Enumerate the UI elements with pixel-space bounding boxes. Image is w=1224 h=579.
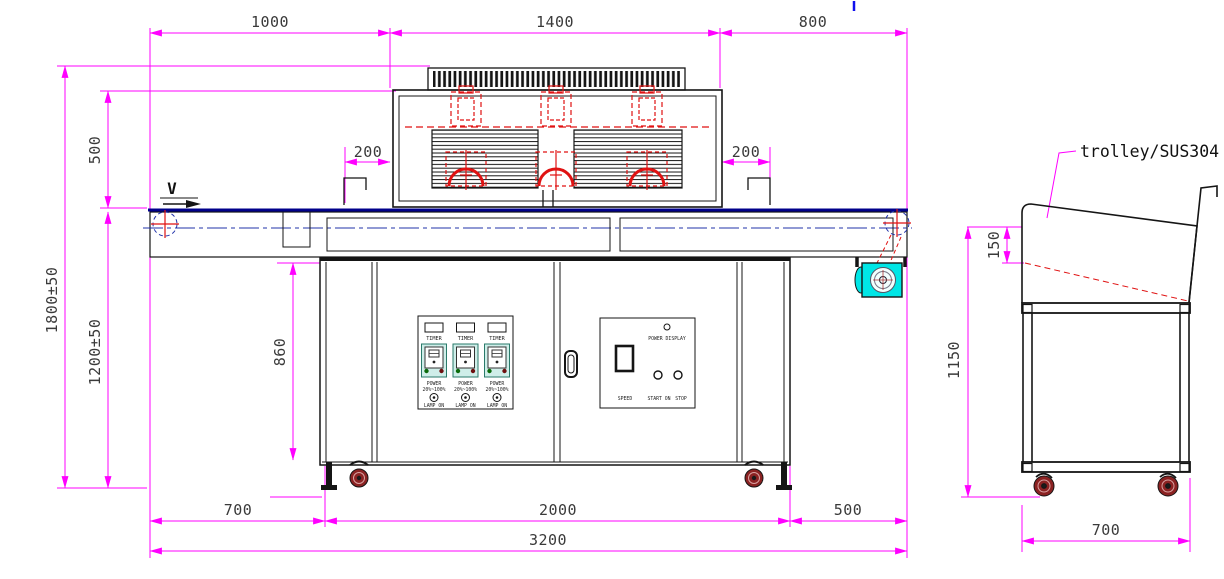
leveling-foot-icon [326,462,332,485]
trolley-back-plate [1189,186,1217,302]
speed-label: SPEED [618,396,633,402]
dim-top-mid-label: 1400 [536,13,574,31]
timer-label: TIMER [426,336,442,342]
engineering-drawing-canvas: 1000 1400 800 1800±50 500 1200±50 200 20… [0,0,1224,579]
vent-louvers-icon [433,71,680,87]
dimension-labels: 1000 1400 800 1800±50 500 1200±50 200 20… [43,13,1120,549]
power-label: POWER [490,381,505,387]
dim-top-right-label: 800 [799,13,828,31]
timer-label: TIMER [489,336,505,342]
power-range-label: 20%~100% [422,387,445,393]
power-range-label: 20%~100% [485,387,508,393]
lamp-on-label: LAMP ON [455,403,475,409]
dimension-lines [57,28,1190,558]
drive-motor-icon [855,257,905,297]
dim-hood-offset-left-label: 200 [354,143,383,161]
dim-overall-length-label: 3200 [529,531,567,549]
dim-bottom-left-label: 700 [224,501,253,519]
dim-bottom-mid-label: 2000 [539,501,577,519]
heatsink-left [432,130,538,188]
caster-icon [1034,474,1054,496]
dim-tray-depth-label: 150 [985,231,1003,260]
lamp-reflector-icon [536,150,576,190]
blower-module-icon [632,86,662,126]
power-label: POWER [427,381,442,387]
roller-left-icon [151,210,179,238]
direction-arrow-icon [186,200,201,208]
heatsink-right [574,130,682,188]
machine-feet [321,462,792,491]
dim-trolley-height-label: 1150 [945,341,963,379]
dim-cabinet-height-label: 860 [271,338,289,367]
lamp-on-label: LAMP ON [487,403,507,409]
timer-label: TIMER [458,336,474,342]
power-display-label: POWER DISPLAY [648,336,686,342]
blower-module-icon [451,86,481,126]
belt-direction-marker: V [160,179,201,208]
dim-bottom-right-label: 500 [834,501,863,519]
trolley-material-label: trolley/SUS304 [1080,142,1219,161]
left-bracket [344,178,366,205]
right-bracket [748,178,770,205]
power-label: POWER [458,381,473,387]
uv-lamp-internals [405,86,710,190]
power-range-label: 20%~100% [454,387,477,393]
lamp-on-label: LAMP ON [424,403,444,409]
trolley-side-view [1022,186,1217,496]
dim-hood-offset-right-label: 200 [732,143,761,161]
start-on-label: START ON [647,396,670,402]
tray-bottom-hidden-line [1025,263,1188,301]
leveling-foot-icon [781,462,787,485]
caster-icon [1158,474,1178,496]
dim-overall-height-label: 1800±50 [43,267,61,334]
control-cabinet [320,258,790,465]
dim-trolley-width-label: 700 [1092,521,1121,539]
velocity-label: V [167,179,177,198]
door-handle[interactable] [565,351,577,377]
lamp-control-panel: TIMER POWER 20%~100% LAMP ON TIMER P [418,316,513,409]
uv-machine-drawing: 1000 1400 800 1800±50 500 1200±50 200 20… [0,0,1224,579]
dim-belt-height-label: 1200±50 [86,319,104,386]
dim-top-left-label: 1000 [251,13,289,31]
dim-hood-height-label: 500 [86,136,104,165]
stop-label: STOP [675,396,687,402]
speed-control-panel: POWER DISPLAY SPEED START ON STOP [600,318,695,408]
conveyor-belt [143,209,912,265]
trolley-tray [1022,204,1197,303]
blower-module-icon [541,86,571,126]
